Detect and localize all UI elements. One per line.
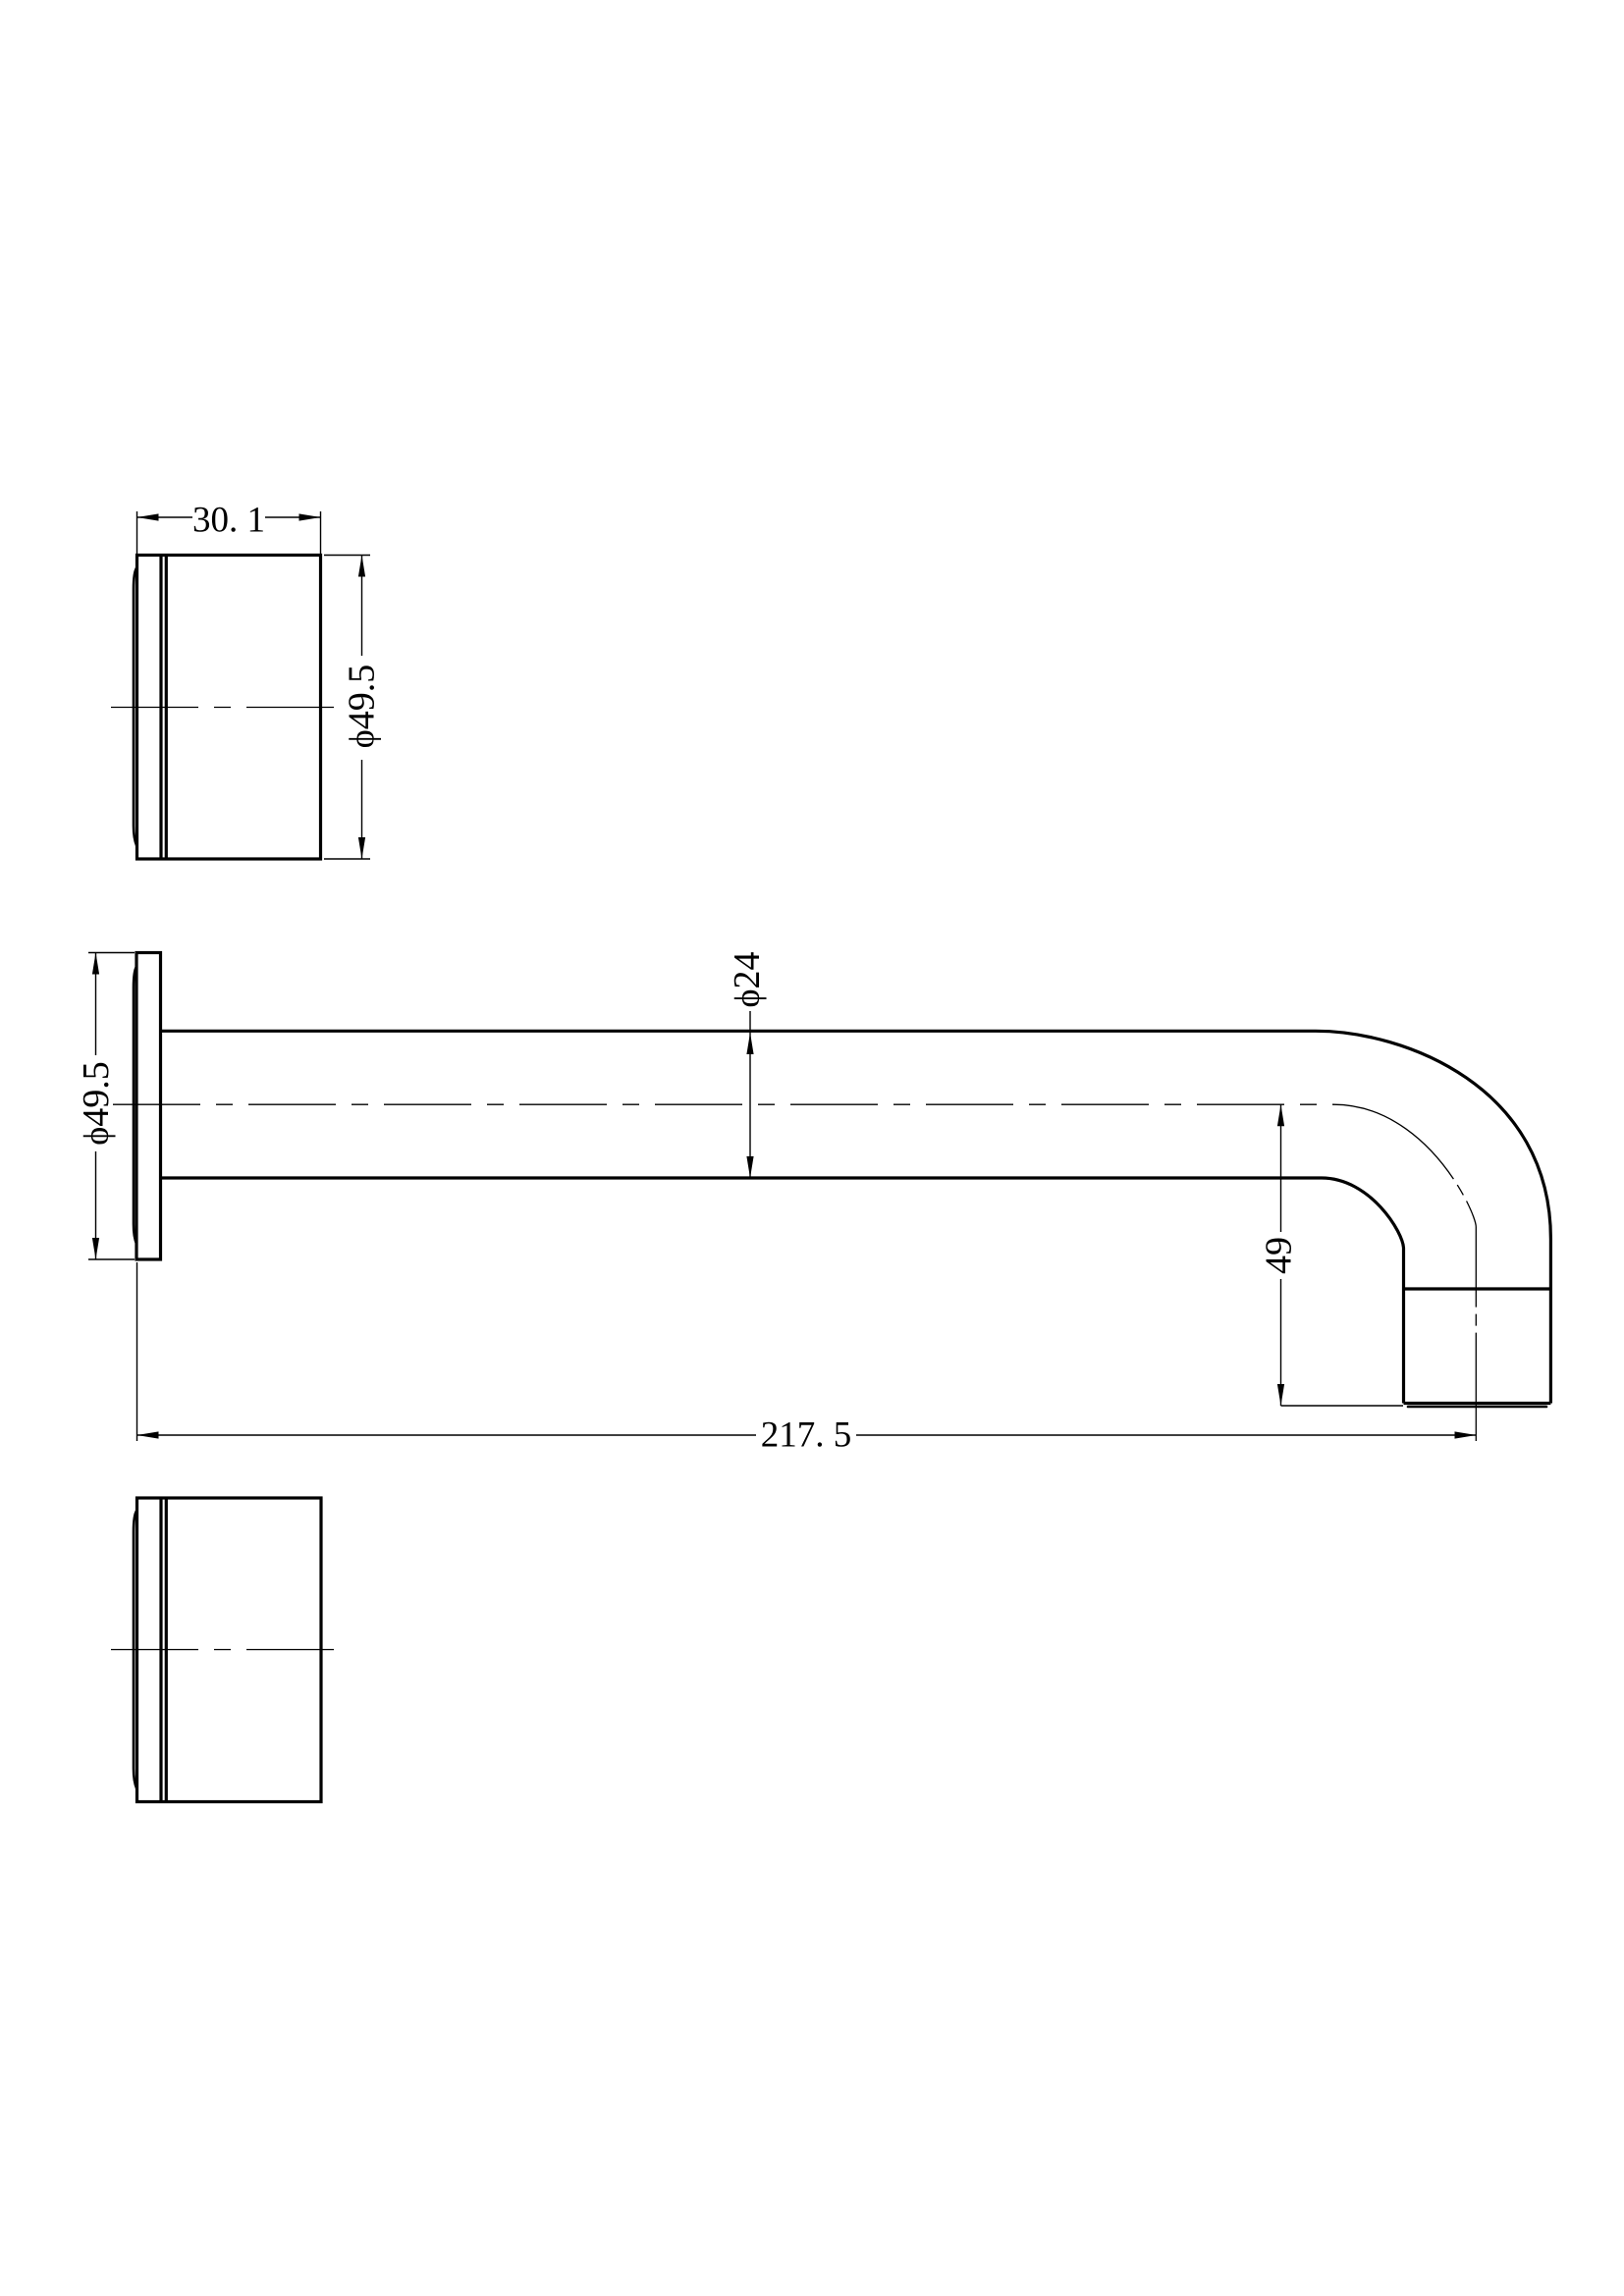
svg-text:49: 49 bbox=[1259, 1237, 1300, 1274]
svg-text:ϕ24: ϕ24 bbox=[727, 952, 768, 1008]
svg-text:30. 1: 30. 1 bbox=[192, 501, 265, 541]
svg-text:ϕ49.5: ϕ49.5 bbox=[76, 1061, 117, 1145]
svg-text:217. 5: 217. 5 bbox=[761, 1415, 852, 1456]
svg-text:ϕ49.5: ϕ49.5 bbox=[342, 665, 383, 748]
